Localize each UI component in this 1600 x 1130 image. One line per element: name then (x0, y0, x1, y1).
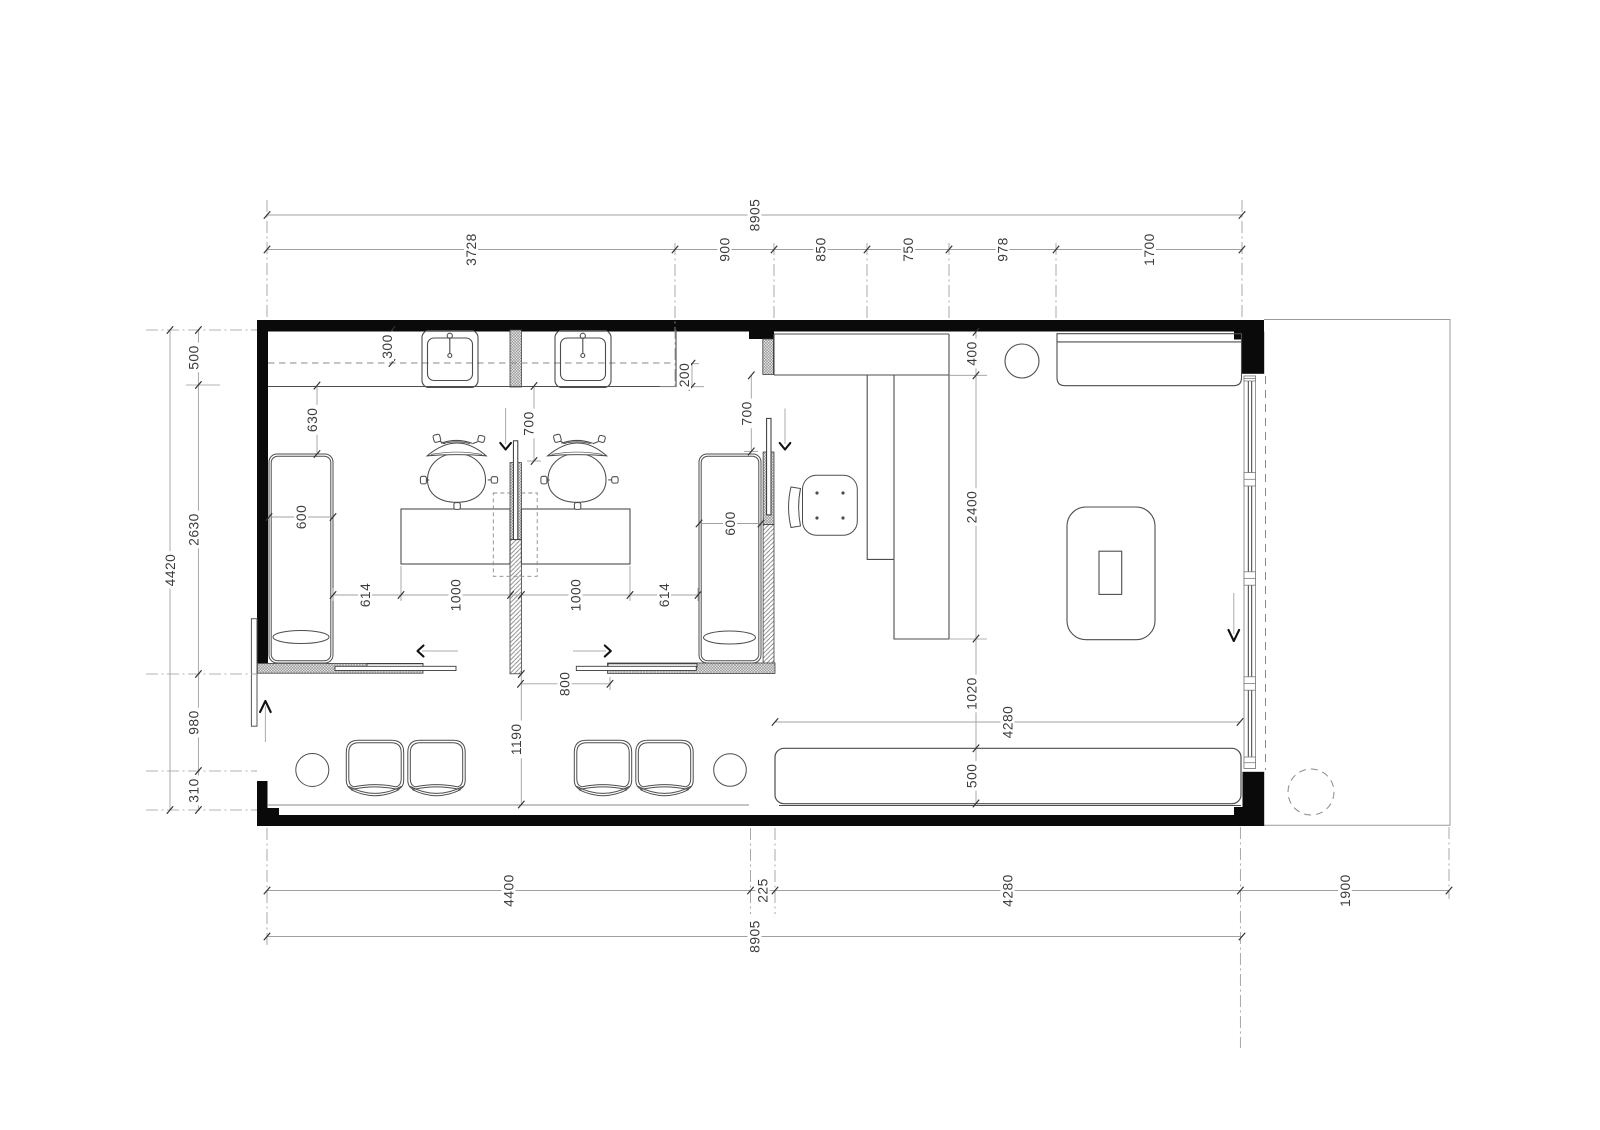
svg-text:500: 500 (186, 345, 201, 370)
svg-text:4280: 4280 (1001, 874, 1016, 907)
svg-text:600: 600 (723, 511, 738, 536)
svg-text:630: 630 (305, 408, 320, 433)
svg-text:700: 700 (522, 411, 537, 436)
svg-text:500: 500 (964, 764, 979, 789)
svg-text:600: 600 (294, 505, 309, 530)
svg-text:700: 700 (739, 401, 754, 426)
svg-text:4400: 4400 (502, 874, 517, 907)
svg-text:8905: 8905 (748, 199, 763, 232)
svg-text:1000: 1000 (449, 579, 464, 612)
svg-text:4420: 4420 (163, 554, 178, 587)
svg-text:3728: 3728 (464, 233, 479, 266)
svg-text:200: 200 (677, 363, 692, 388)
svg-text:614: 614 (657, 583, 672, 608)
svg-text:1000: 1000 (569, 579, 584, 612)
svg-text:614: 614 (358, 583, 373, 608)
svg-text:980: 980 (186, 710, 201, 735)
svg-text:750: 750 (901, 237, 916, 262)
svg-text:850: 850 (814, 237, 829, 262)
svg-text:978: 978 (996, 237, 1011, 262)
svg-text:4280: 4280 (1001, 706, 1016, 739)
svg-text:225: 225 (756, 878, 771, 903)
svg-text:310: 310 (186, 778, 201, 803)
svg-text:1190: 1190 (509, 723, 524, 755)
svg-text:1900: 1900 (1338, 874, 1353, 907)
svg-text:2630: 2630 (186, 513, 201, 546)
svg-text:900: 900 (718, 237, 733, 262)
svg-text:1700: 1700 (1142, 233, 1157, 266)
svg-text:1020: 1020 (964, 677, 979, 710)
svg-text:400: 400 (964, 341, 979, 366)
svg-text:2400: 2400 (964, 491, 979, 524)
svg-text:800: 800 (558, 672, 573, 697)
svg-text:8905: 8905 (748, 920, 763, 953)
svg-text:300: 300 (380, 334, 395, 359)
